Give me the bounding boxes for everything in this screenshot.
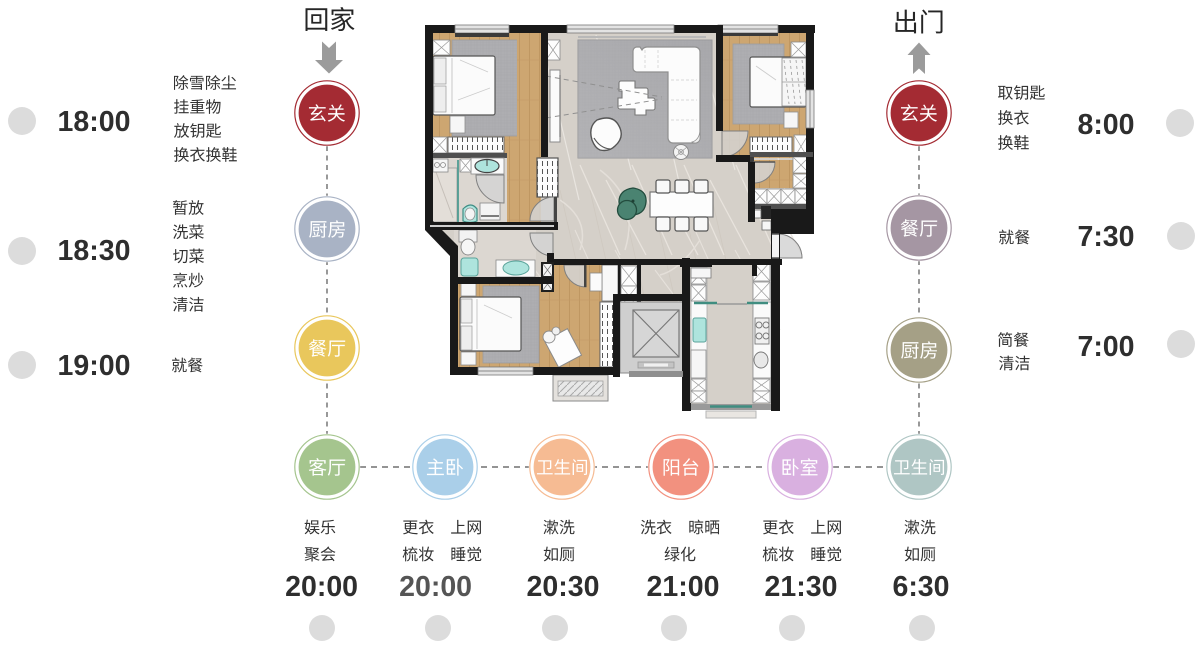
svg-text:20:00: 20:00 [399, 571, 472, 603]
svg-text:21:00: 21:00 [647, 571, 720, 603]
svg-text:19:00: 19:00 [58, 350, 131, 382]
svg-text:21:30: 21:30 [765, 571, 838, 603]
svg-text:20:30: 20:30 [527, 571, 600, 603]
svg-text:20:00: 20:00 [285, 571, 358, 603]
svg-text:8:00: 8:00 [1077, 109, 1134, 141]
svg-text:7:30: 7:30 [1077, 221, 1134, 253]
svg-text:6:30: 6:30 [892, 571, 949, 603]
svg-text:18:30: 18:30 [58, 235, 131, 267]
svg-text:18:00: 18:00 [58, 106, 131, 138]
svg-text:7:00: 7:00 [1077, 331, 1134, 363]
